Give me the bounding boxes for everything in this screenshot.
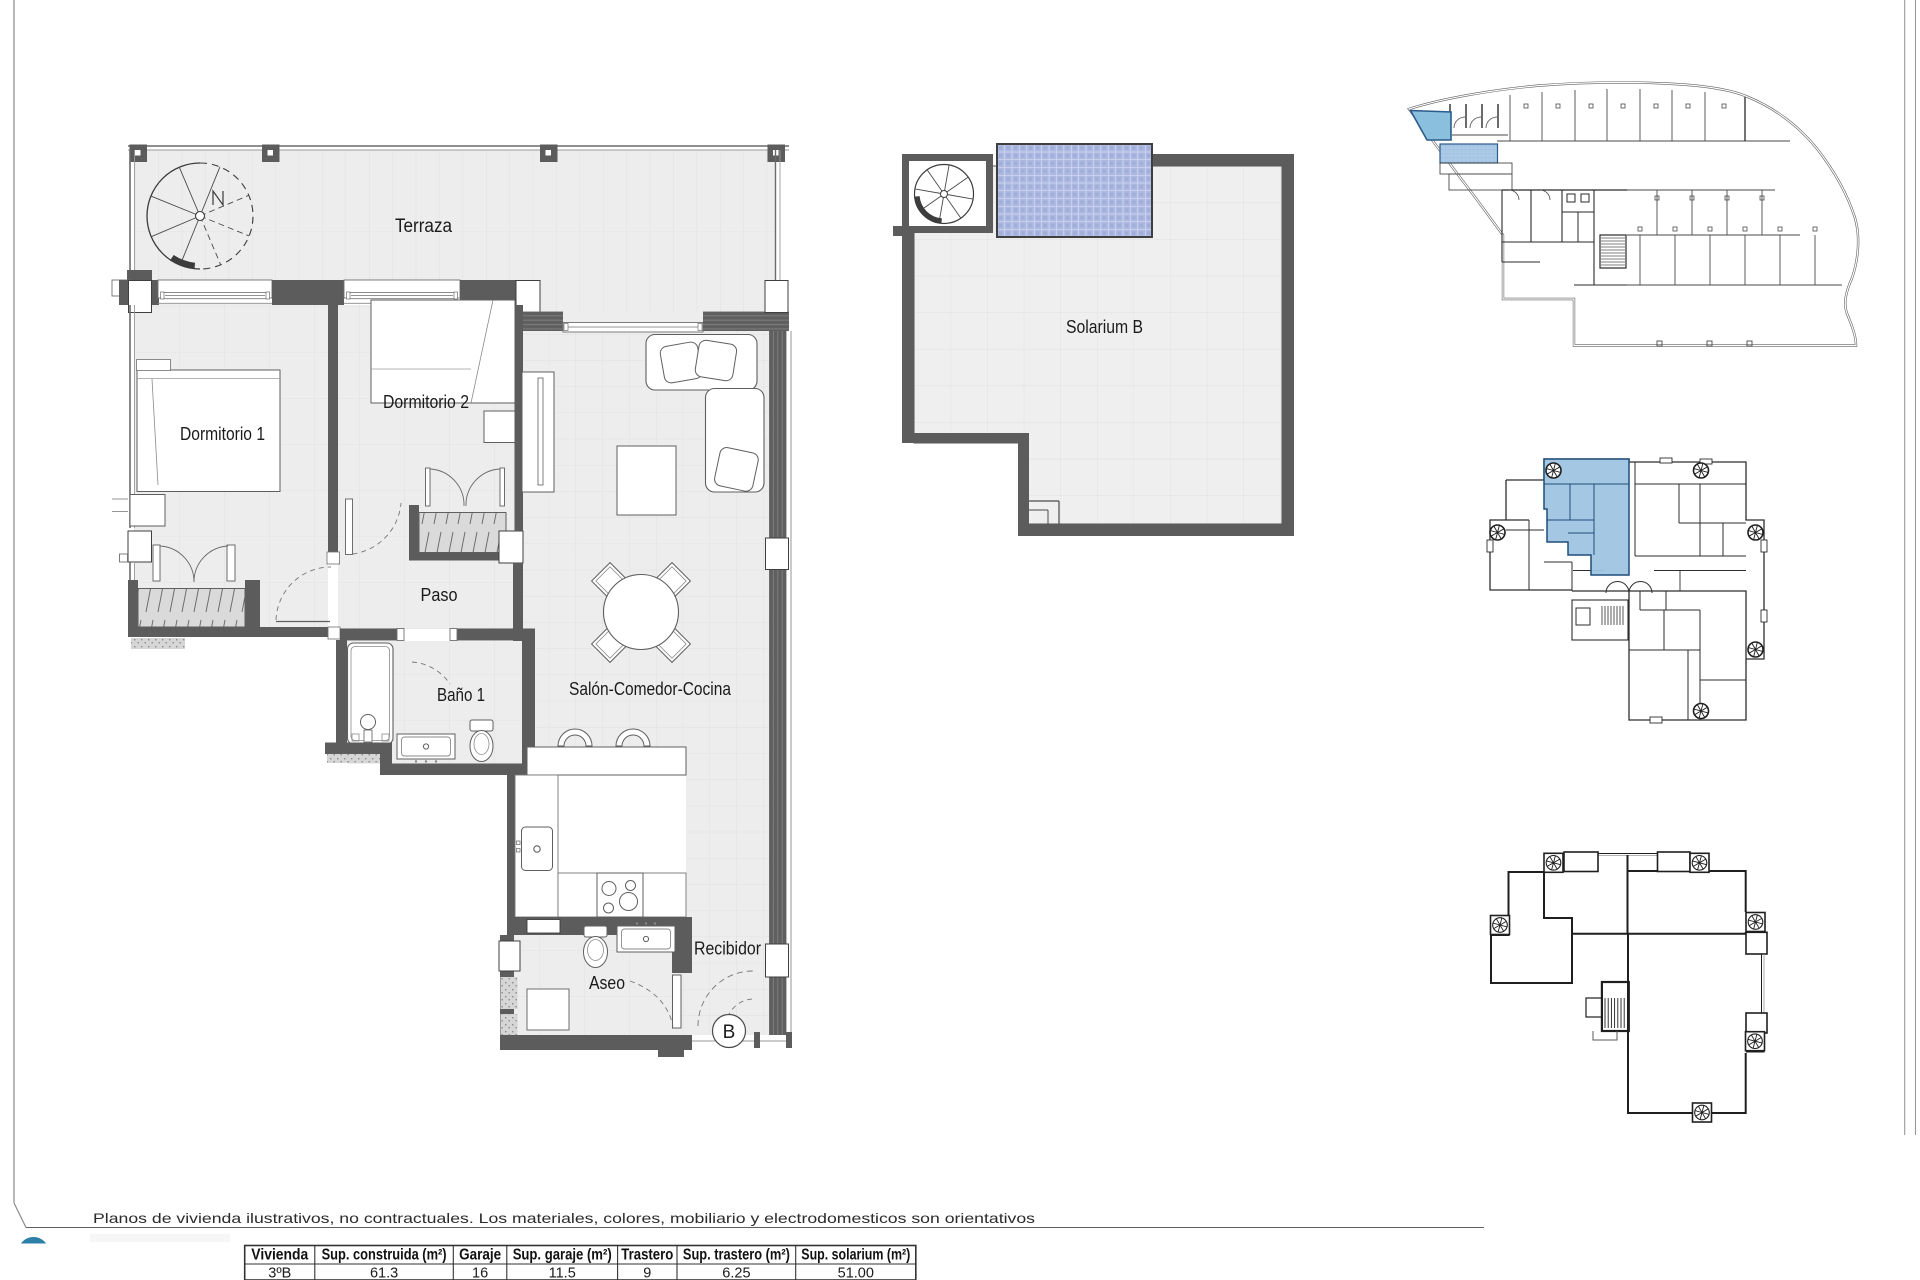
svg-text:Dormitorio 2: Dormitorio 2 [383,391,469,412]
svg-text:Garaje: Garaje [459,1247,501,1264]
svg-text:Planos de vivienda ilustrativo: Planos de vivienda ilustrativos, no cont… [93,1211,1035,1226]
svg-text:B: B [723,1022,736,1043]
svg-text:Vivienda: Vivienda [251,1247,308,1264]
svg-text:Dormitorio 1: Dormitorio 1 [180,423,265,444]
svg-text:Sup. trastero (m²): Sup. trastero (m²) [683,1247,790,1264]
svg-text:3ºB: 3ºB [268,1266,291,1280]
svg-text:Terraza: Terraza [395,216,452,237]
svg-text:61.3: 61.3 [370,1266,398,1280]
svg-text:Solarium B: Solarium B [1066,316,1143,337]
svg-text:9: 9 [643,1266,651,1280]
svg-text:Salón-Comedor-Cocina: Salón-Comedor-Cocina [569,678,732,699]
svg-text:Sup. solarium (m²): Sup. solarium (m²) [801,1247,910,1264]
svg-text:Paso: Paso [421,584,458,605]
svg-text:Baño 1: Baño 1 [437,685,485,705]
svg-text:Trastero: Trastero [621,1247,673,1264]
svg-text:6.25: 6.25 [722,1266,750,1280]
svg-text:Recibidor: Recibidor [694,938,761,959]
svg-text:51.00: 51.00 [838,1266,874,1280]
svg-text:Sup. construida (m²): Sup. construida (m²) [322,1247,447,1264]
svg-text:11.5: 11.5 [549,1266,576,1280]
svg-text:Sup. garaje (m²): Sup. garaje (m²) [513,1247,612,1264]
svg-text:16: 16 [472,1266,488,1280]
svg-text:Aseo: Aseo [589,973,625,993]
